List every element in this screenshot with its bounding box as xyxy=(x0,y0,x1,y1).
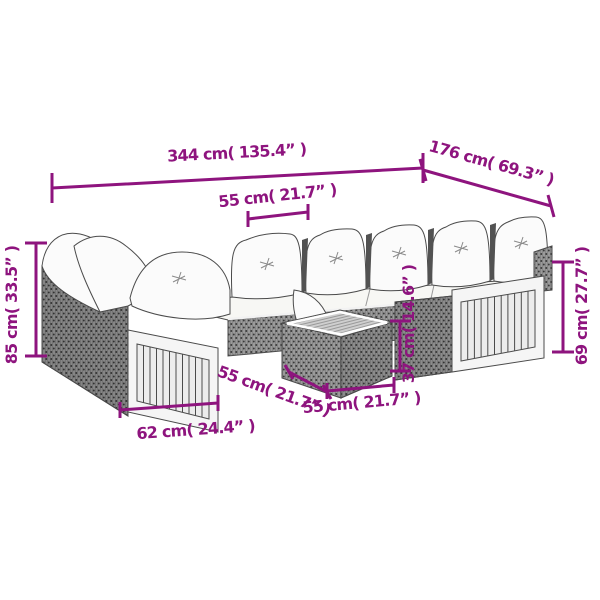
dimension-depth: 176 cm( 69.3” ) xyxy=(420,136,556,217)
dimension-label-back-height: 85 cm( 33.5” ) xyxy=(2,246,21,365)
dimension-arm-height: 69 cm( 27.7” ) xyxy=(552,247,591,366)
dimension-label-table-width: 55 cm( 21.7” ) xyxy=(302,388,422,417)
dimension-label-back-width: 344 cm( 135.4” ) xyxy=(167,139,307,165)
dimension-back-height: 85 cm( 33.5” ) xyxy=(2,243,47,364)
dimension-label-table-height: 37 cm( 14.6” ) xyxy=(399,265,418,384)
left-arm-slat-panel xyxy=(128,330,218,432)
dimension-label-arm-module-width: 62 cm( 24.4” ) xyxy=(136,416,256,443)
dimension-label-depth: 176 cm( 69.3” ) xyxy=(427,136,556,189)
diagram-canvas: 344 cm( 135.4” ) 176 cm( 69.3” ) 55 cm( … xyxy=(0,0,600,600)
coffee-table xyxy=(282,310,392,398)
dimension-label-seat-width: 55 cm( 21.7” ) xyxy=(217,180,337,211)
right-arm-slat-panel xyxy=(452,276,544,372)
dimension-label-arm-height: 69 cm( 27.7” ) xyxy=(572,247,591,366)
dimension-seat-width: 55 cm( 21.7” ) xyxy=(217,180,337,227)
